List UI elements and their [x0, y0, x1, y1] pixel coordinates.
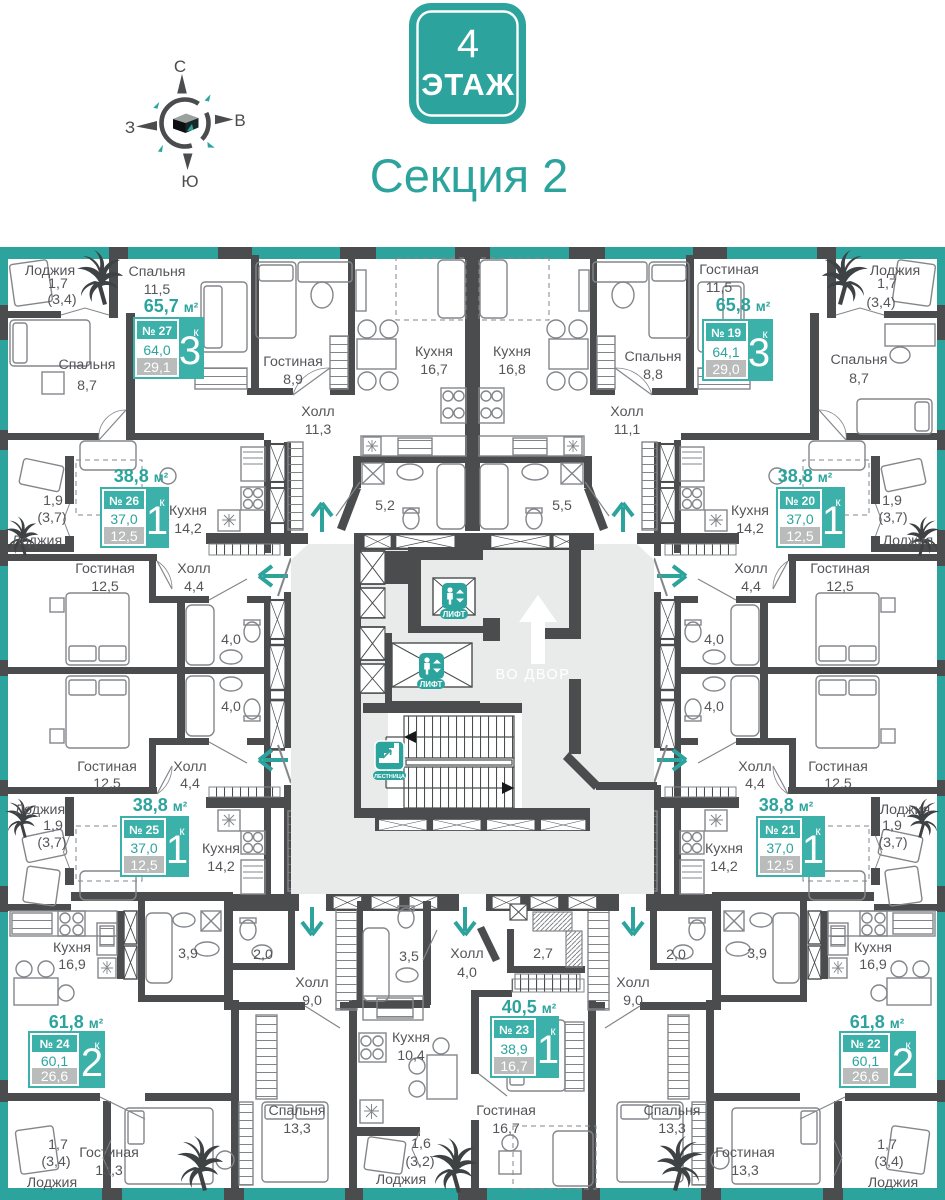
svg-text:Кухня: Кухня: [202, 841, 240, 857]
svg-text:к: к: [815, 824, 821, 838]
svg-text:В: В: [234, 111, 245, 130]
svg-text:5,2: 5,2: [375, 498, 395, 514]
svg-text:37,0: 37,0: [130, 840, 157, 856]
svg-text:Кухня: Кухня: [392, 1030, 430, 1046]
svg-text:4,4: 4,4: [184, 579, 204, 595]
svg-text:Спальня: Спальня: [624, 349, 681, 365]
svg-text:29,0: 29,0: [712, 361, 739, 377]
svg-text:З: З: [125, 118, 135, 137]
svg-text:1: 1: [146, 499, 168, 543]
svg-text:2,7: 2,7: [533, 946, 553, 962]
svg-text:2: 2: [892, 1041, 914, 1085]
svg-text:3,9: 3,9: [747, 946, 767, 962]
svg-text:9,0: 9,0: [623, 993, 643, 1009]
svg-text:(3,4): (3,4): [866, 295, 895, 311]
svg-text:37,0: 37,0: [110, 511, 137, 527]
svg-text:Лоджия: Лоджия: [868, 1175, 918, 1191]
svg-text:37,0: 37,0: [766, 840, 793, 856]
svg-text:к: к: [159, 495, 165, 509]
svg-text:Гостиная: Гостиная: [77, 759, 137, 775]
svg-text:1: 1: [802, 828, 824, 872]
svg-text:1,7: 1,7: [48, 276, 68, 292]
svg-text:Гостиная: Гостиная: [476, 1103, 536, 1119]
svg-text:29,1: 29,1: [143, 359, 170, 375]
svg-text:Гостиная: Гостиная: [808, 759, 868, 775]
svg-text:Холл: Холл: [450, 946, 483, 962]
svg-text:16,7: 16,7: [500, 1058, 527, 1074]
svg-text:12,5: 12,5: [826, 579, 854, 595]
svg-text:Гостиная: Гостиная: [715, 1145, 775, 1161]
svg-text:14,2: 14,2: [174, 521, 202, 537]
svg-text:(3,4): (3,4): [41, 1154, 70, 1170]
svg-text:Гостиная: Гостиная: [699, 262, 759, 278]
svg-text:4,0: 4,0: [221, 699, 241, 715]
svg-text:12,5: 12,5: [110, 528, 137, 544]
svg-text:16,7: 16,7: [420, 362, 448, 378]
svg-text:3,5: 3,5: [399, 949, 419, 965]
svg-text:4,4: 4,4: [745, 776, 765, 792]
svg-text:3,9: 3,9: [178, 946, 198, 962]
svg-text:4,0: 4,0: [221, 632, 241, 648]
svg-text:11,3: 11,3: [305, 422, 332, 438]
svg-text:Кухня: Кухня: [705, 841, 743, 857]
svg-text:к: к: [94, 1038, 100, 1052]
svg-text:60,1: 60,1: [41, 1053, 68, 1069]
svg-text:Спальня: Спальня: [128, 264, 185, 280]
svg-text:Спальня: Спальня: [58, 357, 115, 373]
svg-text:1,9: 1,9: [43, 818, 63, 834]
svg-text:13,3: 13,3: [658, 1121, 686, 1137]
svg-text:Лоджия: Лоджия: [27, 1175, 77, 1191]
svg-text:4: 4: [457, 22, 479, 66]
svg-text:14,2: 14,2: [207, 859, 235, 875]
svg-text:Холл: Холл: [177, 561, 210, 577]
svg-text:Лоджия: Лоджия: [15, 802, 65, 818]
svg-text:Спальня: Спальня: [830, 352, 887, 368]
svg-text:ЛИФТ: ЛИФТ: [443, 610, 466, 619]
svg-text:4,0: 4,0: [704, 632, 724, 648]
svg-text:26,6: 26,6: [852, 1068, 879, 1084]
svg-text:12,5: 12,5: [766, 857, 793, 873]
svg-text:Ю: Ю: [181, 172, 198, 191]
svg-text:2,0: 2,0: [666, 947, 686, 963]
svg-text:С: С: [174, 57, 186, 76]
svg-text:Спальня: Спальня: [268, 1103, 325, 1119]
svg-text:1,9: 1,9: [882, 818, 902, 834]
svg-text:№ 22: № 22: [850, 1037, 880, 1051]
svg-text:4,4: 4,4: [741, 579, 761, 595]
svg-text:8,9: 8,9: [283, 372, 303, 388]
svg-text:1,7: 1,7: [877, 1137, 897, 1153]
svg-text:Холл: Холл: [301, 404, 334, 420]
svg-text:к: к: [550, 1024, 556, 1038]
svg-text:14,2: 14,2: [710, 859, 738, 875]
svg-text:1,9: 1,9: [882, 493, 902, 509]
svg-text:(3,7): (3,7): [37, 510, 66, 526]
svg-text:Холл: Холл: [616, 975, 649, 991]
svg-text:ЭТАЖ: ЭТАЖ: [421, 67, 514, 102]
svg-text:1,6: 1,6: [411, 1136, 431, 1152]
svg-text:(3,4): (3,4): [47, 292, 76, 308]
svg-text:Кухня: Кухня: [731, 503, 769, 519]
svg-text:1: 1: [537, 1028, 559, 1072]
svg-text:Кухня: Кухня: [493, 344, 531, 360]
svg-text:(3,4): (3,4): [874, 1154, 903, 1170]
svg-text:16,9: 16,9: [58, 957, 86, 973]
svg-text:№ 26: № 26: [109, 494, 139, 508]
svg-text:Спальня: Спальня: [643, 1103, 700, 1119]
svg-text:16,8: 16,8: [498, 362, 526, 378]
svg-text:Кухня: Кухня: [854, 940, 892, 956]
svg-text:№ 27: № 27: [142, 324, 172, 338]
svg-text:38,9: 38,9: [500, 1041, 527, 1057]
svg-text:4,4: 4,4: [180, 776, 200, 792]
svg-text:Холл: Холл: [610, 404, 643, 420]
svg-text:12,5: 12,5: [91, 579, 119, 595]
svg-text:Гостиная: Гостиная: [79, 1145, 139, 1161]
svg-text:9,0: 9,0: [302, 993, 322, 1009]
svg-text:16,7: 16,7: [492, 1121, 520, 1137]
svg-text:4,0: 4,0: [704, 699, 724, 715]
svg-text:10,4: 10,4: [397, 1048, 425, 1064]
svg-text:11,1: 11,1: [614, 422, 641, 438]
svg-text:к: к: [835, 495, 841, 509]
svg-text:(3,2): (3,2): [405, 1154, 434, 1170]
svg-text:Лоджия: Лоджия: [376, 1172, 426, 1188]
svg-text:ВО ДВОР: ВО ДВОР: [496, 667, 571, 683]
svg-text:№ 20: № 20: [785, 494, 815, 508]
svg-text:13,3: 13,3: [95, 1163, 123, 1179]
svg-text:Холл: Холл: [734, 561, 767, 577]
svg-text:12,5: 12,5: [786, 528, 813, 544]
svg-text:Холл: Холл: [738, 759, 771, 775]
svg-text:Лоджия: Лоджия: [880, 802, 930, 818]
svg-text:4,0: 4,0: [457, 965, 477, 981]
svg-text:8,7: 8,7: [77, 378, 97, 394]
svg-text:№ 23: № 23: [499, 1023, 529, 1037]
svg-text:ЛЕСТНИЦА: ЛЕСТНИЦА: [374, 774, 405, 780]
svg-text:1: 1: [166, 828, 188, 872]
svg-text:к: к: [193, 325, 199, 339]
svg-text:Холл: Холл: [173, 759, 206, 775]
svg-text:ЛИФТ: ЛИФТ: [420, 680, 443, 689]
svg-text:Кухня: Кухня: [169, 503, 207, 519]
svg-text:Секция 2: Секция 2: [370, 149, 568, 202]
svg-text:12,5: 12,5: [130, 857, 157, 873]
svg-text:(3,7): (3,7): [878, 835, 907, 851]
svg-text:37,0: 37,0: [786, 511, 813, 527]
svg-text:2,0: 2,0: [253, 947, 273, 963]
svg-text:к: к: [179, 824, 185, 838]
svg-text:(3,7): (3,7): [37, 835, 66, 851]
svg-text:11,5: 11,5: [706, 280, 733, 296]
svg-text:8,7: 8,7: [849, 371, 869, 387]
svg-text:2: 2: [81, 1041, 103, 1085]
svg-text:№ 25: № 25: [129, 823, 159, 837]
svg-text:13,3: 13,3: [283, 1121, 311, 1137]
svg-text:13,3: 13,3: [731, 1163, 759, 1179]
svg-text:Гостиная: Гостиная: [810, 561, 870, 577]
svg-text:Кухня: Кухня: [415, 344, 453, 360]
svg-text:Лоджия: Лоджия: [12, 533, 62, 549]
svg-text:5,5: 5,5: [552, 498, 572, 514]
svg-text:12,5: 12,5: [93, 776, 121, 792]
svg-text:№ 21: № 21: [765, 823, 795, 837]
svg-text:к: к: [762, 327, 768, 341]
svg-text:Лоджия: Лоджия: [883, 533, 933, 549]
svg-text:60,1: 60,1: [852, 1053, 879, 1069]
svg-text:1,7: 1,7: [48, 1137, 68, 1153]
svg-text:к: к: [905, 1038, 911, 1052]
svg-text:14,2: 14,2: [736, 521, 764, 537]
svg-text:12,5: 12,5: [824, 776, 852, 792]
svg-text:64,1: 64,1: [712, 344, 739, 360]
svg-text:1: 1: [822, 499, 844, 543]
svg-text:1,7: 1,7: [877, 276, 897, 292]
svg-text:Холл: Холл: [295, 975, 328, 991]
svg-text:1,9: 1,9: [43, 493, 63, 509]
svg-text:26,6: 26,6: [41, 1068, 68, 1084]
svg-text:64,0: 64,0: [143, 342, 170, 358]
svg-text:16,9: 16,9: [859, 957, 887, 973]
svg-text:Кухня: Кухня: [53, 940, 91, 956]
svg-text:№ 24: № 24: [39, 1037, 69, 1051]
svg-text:8,8: 8,8: [643, 367, 663, 383]
svg-text:Гостиная: Гостиная: [263, 354, 323, 370]
svg-text:(3,7): (3,7): [878, 510, 907, 526]
svg-text:Гостиная: Гостиная: [75, 561, 135, 577]
svg-text:№ 19: № 19: [711, 326, 741, 340]
